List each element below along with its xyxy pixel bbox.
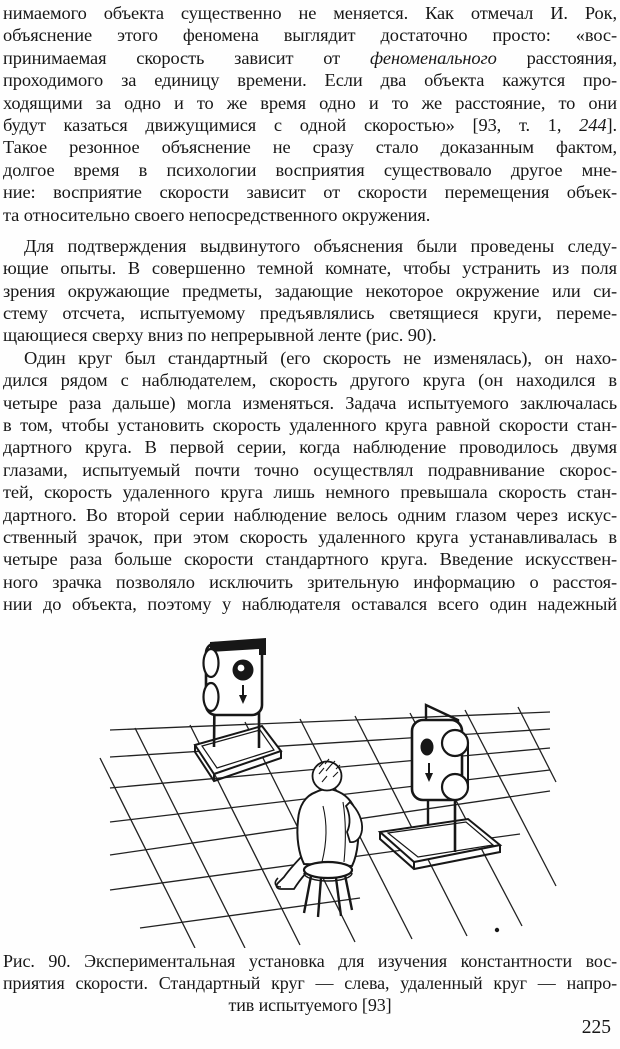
caption-line: Рис. 90. Экспериментальная установка для… bbox=[3, 951, 617, 973]
belt-roller bbox=[442, 774, 468, 800]
text-line: Для подтверждения выдвинутого объяснения… bbox=[3, 235, 617, 257]
text-line: проходимого за единицу времени. Если два… bbox=[3, 69, 617, 91]
text-line: долгое время в психологии восприятия сущ… bbox=[3, 159, 617, 181]
text-line: дился рядом с наблюдателем, скорость дру… bbox=[3, 369, 617, 391]
text-line: дартного круга. В первой серии, когда на… bbox=[3, 436, 617, 458]
text-line: четыре раза дальше) могла изменяться. За… bbox=[3, 392, 617, 414]
text-line: стему отсчета, испытуемому предъявлялись… bbox=[3, 302, 617, 324]
belt-roller bbox=[442, 730, 468, 756]
figure-caption: Рис. 90. Экспериментальная установка для… bbox=[3, 951, 617, 1016]
text-line: тей, скорость удаленного круга лишь немн… bbox=[3, 481, 617, 503]
text-line: объяснение этого феномена выглядит доста… bbox=[3, 24, 617, 46]
ink-speck bbox=[495, 928, 499, 932]
text-line: Такое резонное объяснение не сразу стало… bbox=[3, 136, 617, 158]
belt-roller bbox=[204, 649, 219, 677]
belt-roller bbox=[204, 683, 219, 711]
distant-circle bbox=[421, 739, 434, 756]
book-page: нимаемого объекта существенно не меняетс… bbox=[0, 0, 620, 1049]
paragraph: нимаемого объекта существенно не меняетс… bbox=[3, 2, 617, 226]
standard-circle-apparatus bbox=[195, 638, 281, 781]
text-line: глазами, испытуемый почти точно осуществ… bbox=[3, 459, 617, 481]
text-line: нимаемого объекта существенно не меняетс… bbox=[3, 2, 617, 24]
caption-line: приятия скорости. Стандартный круг — сле… bbox=[3, 973, 617, 995]
text-line: четыре раза больше скорости стандартного… bbox=[3, 548, 617, 570]
text-line: нии до объекта, поэтому у наблюдателя ос… bbox=[3, 593, 617, 615]
text-line: будут казаться движущимися с одной скоро… bbox=[3, 114, 617, 136]
text-line: ющие опыты. В совершенно темной комнате,… bbox=[3, 257, 617, 279]
text-line: та относительно своего непосредственного… bbox=[3, 204, 617, 226]
text-line: принимаемая скорость зависит от феномена… bbox=[3, 47, 617, 69]
text-line: зрения окружающие предметы, задающие нек… bbox=[3, 280, 617, 302]
caption-line: тив испытуемого [93] bbox=[3, 995, 617, 1017]
paragraph: Один круг был стандартный (его скорость … bbox=[3, 347, 617, 616]
text-line: щающиеся сверху вниз по непрерывной лент… bbox=[3, 324, 617, 346]
text-line: дартного. Во второй серии наблюдение вел… bbox=[3, 504, 617, 526]
text-line: Один круг был стандартный (его скорость … bbox=[3, 347, 617, 369]
text-line: ственный зрачок, при этом скорость удале… bbox=[3, 526, 617, 548]
text-line: ходящими за одно и то же время одно и то… bbox=[3, 92, 617, 114]
text-line: в том, чтобы установить скорость удаленн… bbox=[3, 414, 617, 436]
figure-illustration bbox=[98, 626, 562, 948]
paragraph: Для подтверждения выдвинутого объяснения… bbox=[3, 235, 617, 347]
text-line: ного зрачка позволяло исключить зрительн… bbox=[3, 571, 617, 593]
body-text: нимаемого объекта существенно не меняетс… bbox=[3, 2, 617, 616]
experiment-setup-drawing bbox=[98, 626, 562, 948]
distant-circle-apparatus bbox=[380, 705, 500, 869]
observer-figure bbox=[275, 759, 362, 917]
page-number: 225 bbox=[582, 1016, 611, 1040]
text-line: ние: восприятие скорости зависит от скор… bbox=[3, 181, 617, 203]
